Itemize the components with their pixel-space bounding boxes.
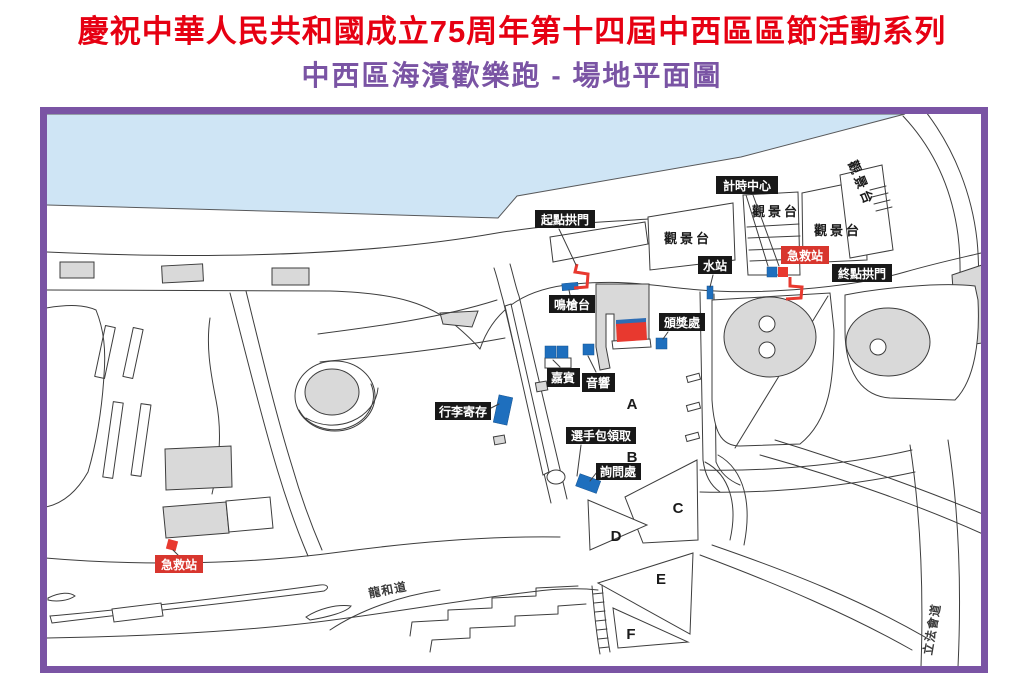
svg-text:急救站: 急救站 bbox=[161, 557, 197, 572]
road-median bbox=[306, 606, 351, 620]
timing-point-marker bbox=[767, 267, 777, 277]
label-firing-platform: 鳴槍台 bbox=[549, 295, 595, 313]
svg-text:起點拱門: 起點拱門 bbox=[540, 212, 589, 227]
tree bbox=[759, 342, 775, 358]
building bbox=[163, 502, 229, 538]
viewing-platform-text: 觀景台 bbox=[664, 231, 712, 246]
fixture bbox=[493, 435, 505, 445]
garden-spiral-lawn bbox=[305, 369, 359, 415]
lawn-oval-east bbox=[846, 308, 930, 376]
zone-F: F bbox=[626, 626, 635, 643]
label-finish-arch: 終點拱門 bbox=[832, 264, 892, 282]
viewing-platform-text: 觀景台 bbox=[814, 223, 862, 238]
site-plan-map: 觀景台 觀景台 觀景台 觀景台 bbox=[0, 0, 1024, 679]
fixture bbox=[535, 381, 547, 392]
planter bbox=[60, 262, 94, 278]
label-baggage-storage: 行李寄存 bbox=[435, 402, 491, 420]
svg-text:急救站: 急救站 bbox=[787, 248, 823, 263]
planter bbox=[272, 268, 309, 285]
road-median bbox=[50, 585, 327, 623]
zone-B: B bbox=[627, 449, 638, 466]
planter-slat bbox=[95, 326, 116, 379]
svg-text:鳴槍台: 鳴槍台 bbox=[554, 297, 590, 312]
promenade-edge bbox=[46, 233, 497, 256]
fixture bbox=[545, 358, 571, 368]
bench bbox=[685, 432, 699, 441]
planter-slat bbox=[131, 404, 151, 477]
traffic-island-E bbox=[598, 553, 693, 634]
tree bbox=[759, 316, 775, 332]
water-station-marker bbox=[707, 286, 713, 299]
zone-E: E bbox=[656, 571, 666, 588]
label-water-station: 水站 bbox=[698, 256, 732, 274]
road-name-legco: 立法會道 bbox=[920, 602, 944, 656]
label-timing-center: 計時中心 bbox=[716, 176, 778, 194]
tram-platform bbox=[112, 603, 163, 622]
svg-text:音響: 音響 bbox=[586, 375, 610, 390]
zone-D: D bbox=[611, 528, 622, 545]
label-runner-pack-pickup: 選手包領取 bbox=[566, 427, 636, 444]
bench bbox=[686, 373, 700, 382]
label-guests: 嘉賓 bbox=[547, 368, 580, 387]
label-first-aid-north: 急救站 bbox=[781, 246, 829, 264]
event-map-page: 慶祝中華人民共和國成立75周年第十四屆中西區區節活動系列 中西區海濱歡樂跑 - … bbox=[0, 0, 1024, 679]
planter bbox=[162, 264, 204, 283]
prize-area-marker bbox=[656, 338, 667, 349]
road-name-lung-wo: 龍和道 bbox=[367, 578, 408, 600]
bench bbox=[686, 402, 700, 411]
audio-marker bbox=[583, 344, 594, 355]
svg-text:水站: 水站 bbox=[703, 258, 727, 273]
road-median bbox=[48, 593, 75, 601]
label-first-aid-south: 急救站 bbox=[155, 555, 203, 573]
guest-stand-marker bbox=[545, 346, 556, 358]
first-aid-marker bbox=[166, 539, 178, 551]
svg-text:詢問處: 詢問處 bbox=[600, 464, 636, 479]
planter-slat bbox=[103, 402, 123, 479]
building bbox=[165, 446, 232, 490]
guest-stand-marker bbox=[557, 346, 568, 358]
svg-text:頒獎處: 頒獎處 bbox=[663, 315, 700, 330]
label-start-arch: 起點拱門 bbox=[535, 210, 595, 228]
roundabout-island bbox=[547, 470, 565, 484]
label-audio: 音響 bbox=[582, 373, 615, 392]
building bbox=[226, 497, 273, 532]
label-prize-area: 頒獎處 bbox=[659, 313, 705, 331]
baggage-marker bbox=[493, 395, 513, 425]
svg-text:終點拱門: 終點拱門 bbox=[838, 266, 886, 281]
first-aid-marker bbox=[778, 267, 788, 277]
svg-text:選手包領取: 選手包領取 bbox=[571, 428, 631, 443]
svg-text:嘉賓: 嘉賓 bbox=[550, 370, 575, 385]
zone-C: C bbox=[673, 500, 684, 517]
lawn-oval-west bbox=[724, 297, 816, 377]
tree bbox=[870, 339, 886, 355]
svg-text:行李寄存: 行李寄存 bbox=[438, 404, 487, 419]
zone-A: A bbox=[627, 396, 638, 413]
svg-text:計時中心: 計時中心 bbox=[723, 178, 771, 193]
stage-red-canopy bbox=[616, 322, 647, 342]
planter-slat bbox=[123, 328, 143, 379]
